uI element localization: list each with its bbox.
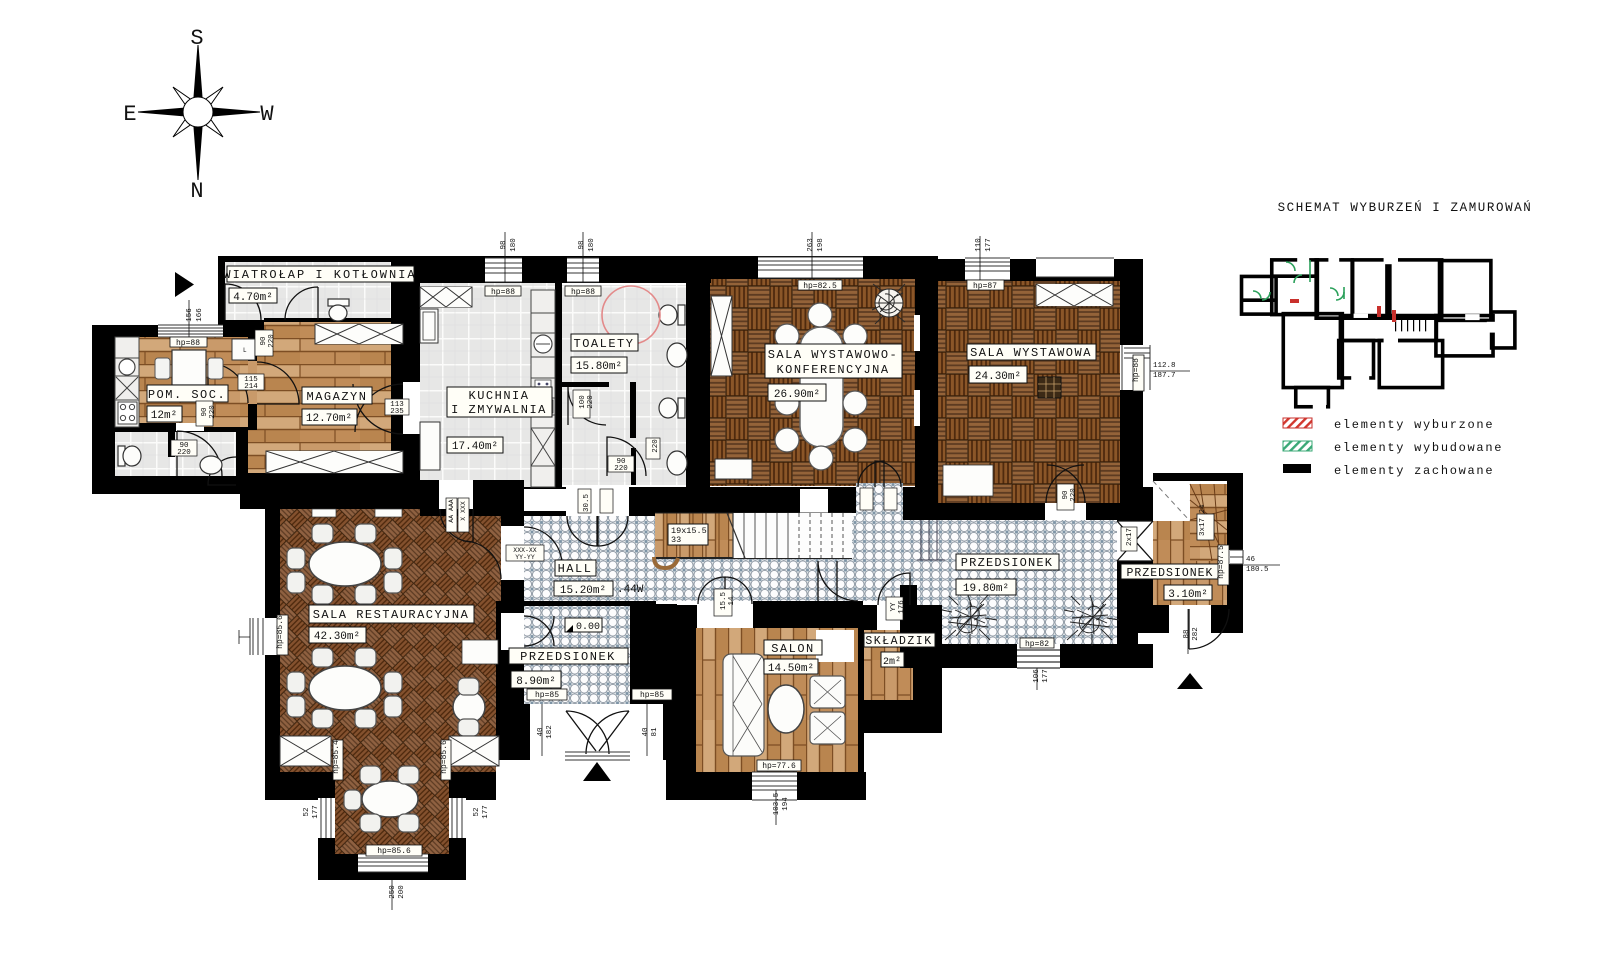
svg-text:PRZEDSIONEK: PRZEDSIONEK <box>961 556 1053 570</box>
svg-text:I ZMYWALNIA: I ZMYWALNIA <box>451 403 547 417</box>
svg-text:177: 177 <box>312 805 320 819</box>
svg-text:hp=88: hp=88 <box>491 288 515 297</box>
svg-text:KONFERENCYJNA: KONFERENCYJNA <box>776 363 889 377</box>
svg-text:SALA WYSTAWOWO-: SALA WYSTAWOWO- <box>768 348 899 362</box>
svg-text:12m²: 12m² <box>151 410 177 422</box>
svg-text:177: 177 <box>1042 669 1050 683</box>
svg-text:hp=85: hp=85 <box>640 691 664 700</box>
svg-text:180: 180 <box>510 238 518 252</box>
svg-text:hp=85.6: hp=85.6 <box>377 847 411 856</box>
svg-text:42.30m²: 42.30m² <box>314 631 360 643</box>
svg-text:15.80m²: 15.80m² <box>576 361 622 373</box>
svg-text:33: 33 <box>671 535 681 545</box>
svg-text:W: W <box>260 102 274 127</box>
svg-text:hp=85: hp=85 <box>535 691 559 700</box>
svg-text:POM. SOC.: POM. SOC. <box>148 388 226 402</box>
svg-text:SCHEMAT WYBURZEŃ I ZAMUROWAŃ: SCHEMAT WYBURZEŃ I ZAMUROWAŃ <box>1278 200 1533 215</box>
svg-text:220: 220 <box>587 395 595 409</box>
svg-text:110: 110 <box>975 238 983 252</box>
svg-text:hp=88: hp=88 <box>571 288 595 297</box>
svg-text:90: 90 <box>201 407 209 417</box>
svg-text:15.20m²: 15.20m² <box>560 585 606 597</box>
svg-text:52: 52 <box>303 807 311 816</box>
svg-text:hp=82: hp=82 <box>1025 640 1049 649</box>
svg-text:SALA RESTAURACYJNA: SALA RESTAURACYJNA <box>313 608 470 622</box>
svg-text:198: 198 <box>817 238 825 252</box>
svg-text:52: 52 <box>473 807 481 816</box>
svg-text:L: L <box>243 347 247 354</box>
svg-text:N: N <box>190 179 203 204</box>
svg-text:17.40m²: 17.40m² <box>452 441 498 453</box>
svg-text:MAGAZYN: MAGAZYN <box>307 390 368 404</box>
svg-text:40: 40 <box>537 727 545 737</box>
svg-text:hp=87.5: hp=87.5 <box>1217 545 1226 579</box>
svg-text:3x17 24: 3x17 24 <box>1199 504 1207 536</box>
svg-text:8.90m²: 8.90m² <box>516 676 556 688</box>
svg-text:220: 220 <box>652 439 660 453</box>
svg-text:12.70m²: 12.70m² <box>306 413 352 425</box>
svg-text:156: 156 <box>186 308 194 322</box>
svg-text:15.5: 15.5 <box>720 592 728 611</box>
svg-text:KUCHNIA: KUCHNIA <box>469 389 530 403</box>
svg-text:YY: YY <box>890 602 898 612</box>
svg-text:hp=87: hp=87 <box>973 282 997 291</box>
svg-text:4.70m²: 4.70m² <box>233 292 273 304</box>
svg-text:263: 263 <box>807 238 815 252</box>
svg-text:.44W: .44W <box>617 584 644 596</box>
svg-text:S: S <box>190 26 203 51</box>
svg-text:TOALETY: TOALETY <box>574 337 635 351</box>
svg-text:177: 177 <box>985 238 993 252</box>
svg-text:hp=85.4: hp=85.4 <box>332 740 341 774</box>
svg-text:46: 46 <box>1246 556 1256 564</box>
svg-text:98: 98 <box>500 240 508 249</box>
svg-text:220: 220 <box>177 449 191 457</box>
svg-text:200: 200 <box>398 885 406 899</box>
svg-text:214: 214 <box>244 383 258 391</box>
svg-text:220: 220 <box>614 465 628 473</box>
svg-text:YY-YY: YY-YY <box>515 554 535 561</box>
svg-text:AA AAA: AA AAA <box>448 499 455 523</box>
svg-text:SKŁADZIK: SKŁADZIK <box>865 635 932 648</box>
svg-text:103.5: 103.5 <box>773 792 781 815</box>
svg-text:elementy zachowane: elementy zachowane <box>1334 464 1494 478</box>
svg-text:hp=82.5: hp=82.5 <box>803 282 837 291</box>
svg-text:187.7: 187.7 <box>1153 372 1176 380</box>
svg-text:PRZEDSIONEK: PRZEDSIONEK <box>1127 567 1214 580</box>
svg-text:hp=88: hp=88 <box>1132 358 1141 382</box>
svg-text:40: 40 <box>642 727 650 737</box>
svg-text:220: 220 <box>268 334 276 348</box>
svg-text:2m²: 2m² <box>883 657 901 668</box>
svg-text:HALL: HALL <box>558 562 593 576</box>
svg-text:E: E <box>123 102 136 127</box>
svg-text:220: 220 <box>209 405 217 419</box>
svg-text:98: 98 <box>578 240 586 249</box>
svg-text:3.10m²: 3.10m² <box>1168 589 1208 601</box>
svg-text:112.8: 112.8 <box>1153 362 1176 370</box>
svg-text:24.30m²: 24.30m² <box>975 371 1021 383</box>
svg-text:26.90m²: 26.90m² <box>774 389 820 401</box>
svg-text:elementy wyburzone: elementy wyburzone <box>1334 418 1494 432</box>
svg-text:220: 220 <box>1070 488 1078 502</box>
svg-text:30.5: 30.5 <box>583 494 591 513</box>
svg-text:282: 282 <box>1192 627 1200 641</box>
svg-text:81: 81 <box>651 727 659 737</box>
svg-text:elementy wybudowane: elementy wybudowane <box>1334 441 1503 455</box>
svg-text:PRZEDSIONEK: PRZEDSIONEK <box>520 650 616 664</box>
svg-text:250: 250 <box>389 885 397 899</box>
svg-text:90: 90 <box>1062 490 1070 500</box>
svg-text:180: 180 <box>588 238 596 252</box>
svg-text:14: 14 <box>728 596 736 606</box>
svg-text:SALON: SALON <box>771 642 815 656</box>
svg-text:194: 194 <box>782 797 790 811</box>
svg-text:WIATROŁAP I KOTŁOWNIA: WIATROŁAP I KOTŁOWNIA <box>223 268 416 282</box>
svg-text:0.00: 0.00 <box>576 622 600 633</box>
svg-text:hp=88: hp=88 <box>176 339 200 348</box>
svg-text:14.50m²: 14.50m² <box>768 663 814 675</box>
svg-text:235: 235 <box>390 408 404 416</box>
svg-text:19.80m²: 19.80m² <box>963 583 1009 595</box>
svg-text:XXX-XX: XXX-XX <box>513 547 537 554</box>
svg-text:166: 166 <box>196 308 204 322</box>
svg-text:100: 100 <box>579 395 587 409</box>
svg-text:177: 177 <box>482 805 490 819</box>
svg-text:hp=77.6: hp=77.6 <box>762 762 796 771</box>
svg-text:SALA WYSTAWOWA: SALA WYSTAWOWA <box>970 346 1092 360</box>
svg-text:2x17: 2x17 <box>1126 528 1134 546</box>
svg-text:88: 88 <box>1183 629 1191 638</box>
svg-text:X XXX: X XXX <box>460 501 467 521</box>
svg-text:176: 176 <box>898 600 906 614</box>
svg-text:hp=85.6: hp=85.6 <box>440 740 449 774</box>
svg-text:90: 90 <box>260 336 268 346</box>
svg-text:180.5: 180.5 <box>1246 566 1269 574</box>
svg-text:hp=85.6: hp=85.6 <box>276 615 285 649</box>
svg-text:182: 182 <box>546 725 554 739</box>
